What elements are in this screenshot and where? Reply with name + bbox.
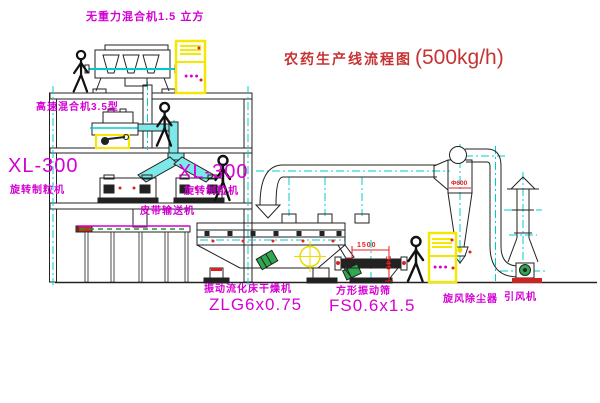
dimension-screen-height: 540 bbox=[384, 256, 391, 271]
title-chinese: 农药生产线流程图 bbox=[284, 49, 412, 69]
label-zero-gravity-mixer: 无重力混合机1.5 立方 bbox=[86, 12, 204, 23]
vibrating-screen bbox=[335, 257, 407, 283]
granulator-left bbox=[98, 175, 158, 203]
person-ground bbox=[408, 237, 423, 281]
label-granulator-left-name: 旋转制粒机 bbox=[10, 186, 65, 196]
process-flow-diagram: 无重力混合机1.5 立方 农药生产线流程图 (500kg/h) 高速混合机3.5… bbox=[0, 0, 600, 403]
label-granulator-center-model: XL-300 bbox=[178, 162, 249, 182]
dimension-screen-length: 1500 bbox=[357, 242, 377, 249]
label-high-speed-mixer: 高速混合机3.5型 bbox=[36, 103, 119, 113]
label-fan: 引风机 bbox=[504, 293, 537, 303]
belt-conveyor bbox=[76, 209, 190, 282]
label-dryer-name: 振动流化床干燥机 bbox=[204, 285, 292, 295]
label-belt-conveyor: 皮带输送机 bbox=[140, 207, 195, 217]
title-capacity: (500kg/h) bbox=[415, 46, 504, 70]
label-granulator-center-name: 旋转制粒机 bbox=[184, 187, 239, 197]
cabinet-lower-display: ●●● bbox=[433, 264, 449, 271]
dimension-cyclone-diameter: Φ600 bbox=[451, 180, 467, 187]
label-dryer-model: ZLG6x0.75 bbox=[209, 296, 302, 313]
zero-gravity-mixer bbox=[85, 45, 179, 93]
label-cyclone: 旋风除尘器 bbox=[443, 295, 498, 305]
induced-draft-fan bbox=[512, 263, 542, 283]
diagram-title: 农药生产线流程图 (500kg/h) bbox=[284, 46, 504, 70]
control-cabinet-lower bbox=[429, 233, 456, 282]
label-screen-model: FS0.6x1.5 bbox=[329, 297, 416, 314]
exhaust-duct bbox=[256, 165, 437, 218]
cabinet-upper-display: ●●● bbox=[184, 73, 200, 80]
control-cabinet-upper bbox=[176, 41, 205, 93]
label-granulator-left-model: XL-300 bbox=[8, 156, 79, 176]
